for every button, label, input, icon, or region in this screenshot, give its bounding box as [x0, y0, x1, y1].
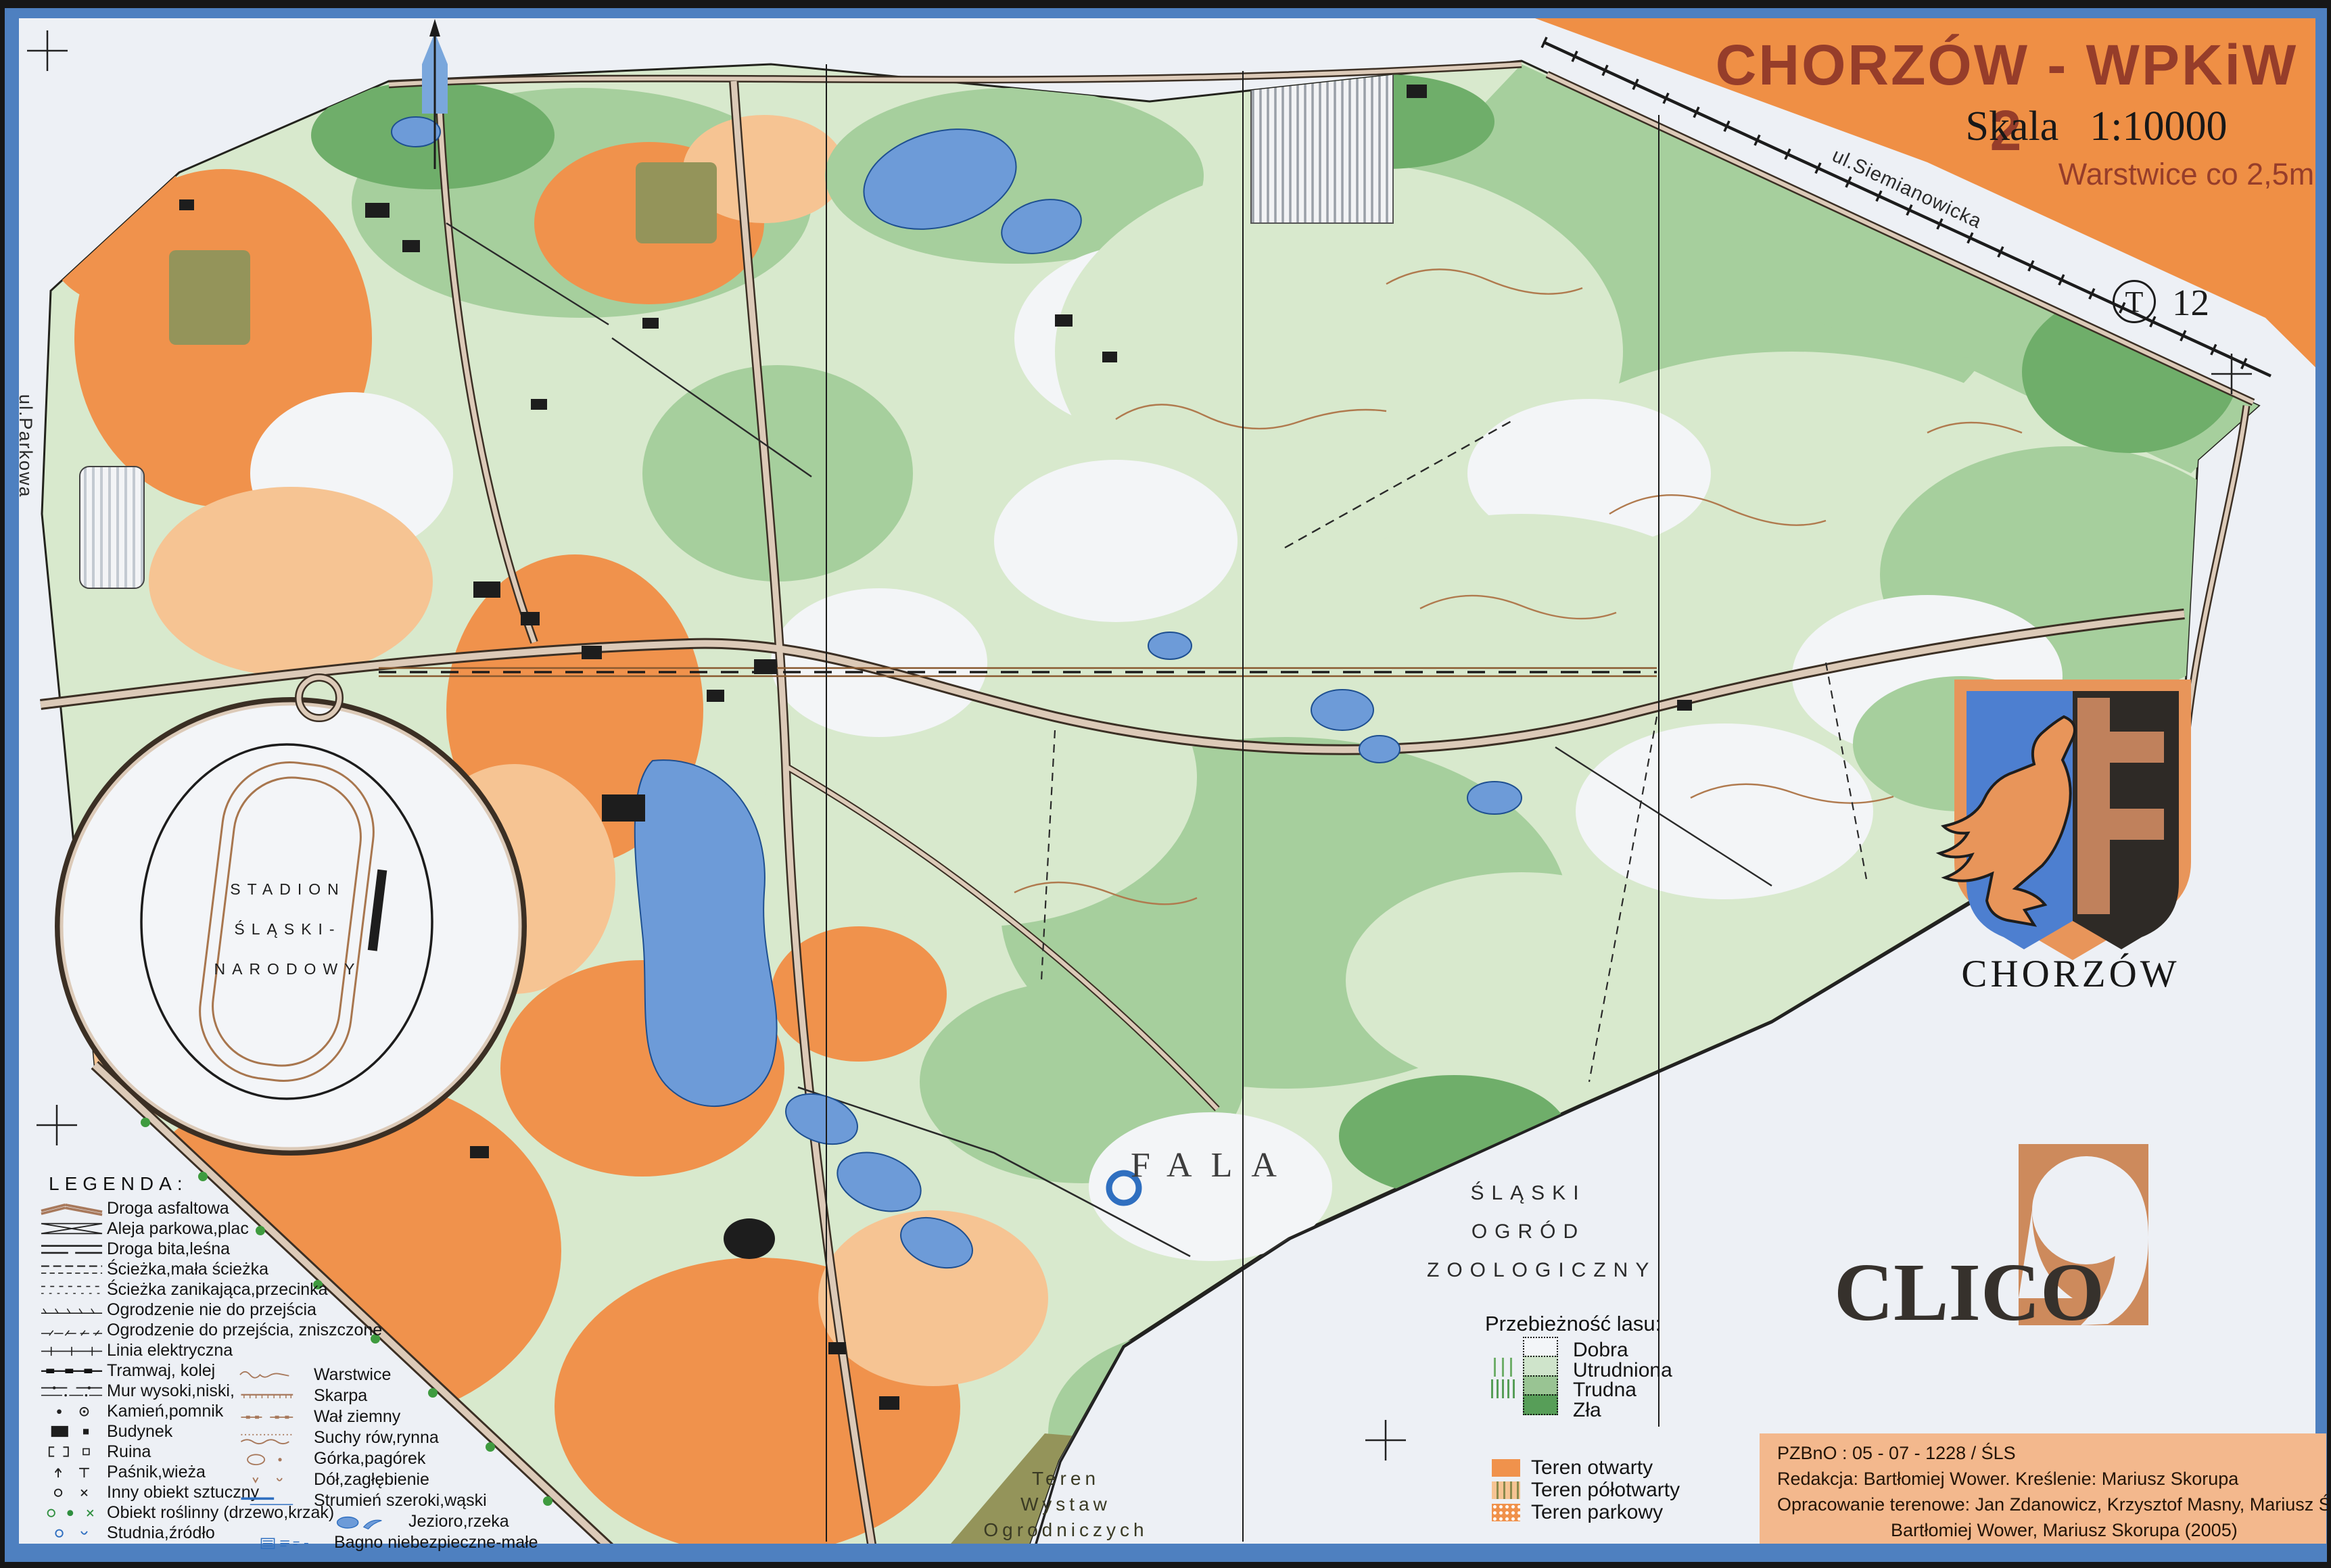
- credits-survey-1: Opracowanie terenowe: Jan Zdanowicz, Krz…: [1777, 1494, 2326, 1515]
- legend-item-label: Skarpa: [314, 1386, 367, 1406]
- run-slow-swatch: [1523, 1356, 1558, 1377]
- sw-semiopen-swatch: [1492, 1481, 1520, 1499]
- legend-item-label: Budynek: [107, 1422, 172, 1442]
- legend-item: Bagno niebezpieczne-małe: [258, 1532, 538, 1553]
- legend-item-label: Górka,pagórek: [314, 1449, 425, 1469]
- scale-value: 1:10000: [2090, 103, 2227, 151]
- budynek-icon: [39, 1422, 107, 1441]
- legend-item-label: Inny obiekt sztuczny: [107, 1483, 259, 1502]
- credits-registry: PZBnO : 05 - 07 - 1228 / ŚLS: [1777, 1443, 2326, 1464]
- strumien-icon: [238, 1492, 314, 1511]
- legend-item-label: Warstwice: [314, 1365, 391, 1385]
- zoo-label-line3: ZOOLOGICZNY: [1427, 1251, 1630, 1289]
- linia-elektryczna-icon: [39, 1341, 107, 1360]
- aleja-parkowa-icon: [39, 1219, 107, 1238]
- credits-survey-2: Bartłomiej Wower, Mariusz Skorupa (2005): [1891, 1520, 2326, 1541]
- skarpa-icon: [238, 1387, 314, 1406]
- runnability-label: Dobra: [1573, 1339, 1672, 1359]
- run-hard-swatch: [1523, 1375, 1558, 1396]
- clico-logo-text: CLICO: [1834, 1245, 2104, 1340]
- ogrodzenie-nie-icon: [39, 1300, 107, 1319]
- crest-city-label: CHORZÓW: [1942, 952, 2199, 996]
- legend-item-label: Kamień,pomnik: [107, 1402, 223, 1421]
- exhibition-label-line3: Ogrodniczych: [971, 1517, 1160, 1543]
- stadium-label: STADION ŚLĄSKI- NARODOWY: [195, 870, 381, 989]
- legend-item: Dół,zagłębienie: [238, 1469, 538, 1490]
- droga-bita-icon: [39, 1239, 107, 1258]
- gorka-pagorek-icon: [238, 1450, 314, 1469]
- legend-item: Jezioro,rzeka: [333, 1511, 538, 1532]
- terrain-type-label: Teren otwarty: [1531, 1456, 1653, 1479]
- legend-item: Aleja parkowa,plac: [39, 1218, 382, 1239]
- legend-item: Strumień szeroki,wąski: [238, 1490, 538, 1511]
- exhibition-label-line1: Teren: [971, 1466, 1160, 1492]
- stadium-label-line3: NARODOWY: [195, 949, 381, 989]
- suchy-row-icon: [238, 1429, 314, 1448]
- legend-item-label: Ruina: [107, 1442, 151, 1462]
- runnability-label: Utrudniona: [1573, 1359, 1672, 1379]
- legend-item: Skarpa: [238, 1385, 538, 1406]
- legend-item-label: Mur wysoki,niski,: [107, 1381, 235, 1401]
- map-sheet: CHORZÓW - WPKiW 2 Skala 1:10000 Warstwic…: [0, 0, 2331, 1568]
- sw-open-swatch: [1492, 1459, 1520, 1477]
- legend-item: Droga asfaltowa: [39, 1198, 382, 1218]
- ogrodzenie-do-icon: [39, 1321, 107, 1339]
- legend-item: Linia elektryczna: [39, 1340, 382, 1360]
- legend-item-label: Droga bita,leśna: [107, 1239, 230, 1259]
- zoo-label-line1: ŚLĄSKI: [1427, 1174, 1630, 1212]
- legend-item: Droga bita,leśna: [39, 1239, 382, 1259]
- planetarium-dome: [724, 1218, 775, 1259]
- legend-item-label: Bagno niebezpieczne-małe: [334, 1533, 538, 1552]
- legend-item-label: Ogrodzenie do przejścia, zniszczone: [107, 1321, 382, 1340]
- sw-park-swatch: [1492, 1504, 1520, 1521]
- scan-edge-right: [2327, 0, 2331, 1568]
- legend-item: Ogrodzenie do przejścia, zniszczone: [39, 1320, 382, 1340]
- scale-word: Skala: [1966, 103, 2059, 151]
- legend-item-label: Ogrodzenie nie do przejścia: [107, 1300, 316, 1320]
- scan-edge-left: [0, 0, 5, 1568]
- legend-item-label: Ścieżka zanikająca,przecinka: [107, 1280, 328, 1300]
- map-code-letter: T: [2125, 285, 2144, 319]
- legend-item-label: Aleja parkowa,plac: [107, 1219, 249, 1239]
- pasnik-wieza-icon: [39, 1463, 107, 1481]
- contour-interval-note: Warstwice co 2,5m: [2049, 157, 2324, 192]
- scan-edge-top: [0, 0, 2331, 8]
- tramwaj-kolej-icon: [39, 1361, 107, 1380]
- mur-icon: [39, 1381, 107, 1400]
- terrain-type-label: Teren parkowy: [1531, 1501, 1663, 1524]
- wal-ziemny-icon: [238, 1408, 314, 1427]
- legend-item-label: Droga asfaltowa: [107, 1199, 229, 1218]
- sciezka-zanikajaca-icon: [39, 1280, 107, 1299]
- legend-item: Wał ziemny: [238, 1406, 538, 1427]
- map-frame-left: [5, 8, 19, 1562]
- kamien-pomnik-icon: [39, 1402, 107, 1421]
- legend-item: Ogrodzenie nie do przejścia: [39, 1300, 382, 1320]
- legend-item-label: Suchy rów,rynna: [314, 1428, 439, 1448]
- obiekt-roslinny-icon: [39, 1503, 107, 1522]
- legend-item-label: Dół,zagłębienie: [314, 1470, 429, 1490]
- legend-heading: LEGENDA:: [49, 1173, 188, 1195]
- legend-item: Górka,pagórek: [238, 1448, 538, 1469]
- bagno-icon: [258, 1534, 334, 1552]
- credits-editors: Redakcja: Bartłomiej Wower. Kreślenie: M…: [1777, 1469, 2326, 1490]
- scale-line: Skala 1:10000: [1927, 103, 2265, 151]
- dol-zaglebienie-icon: [238, 1471, 314, 1490]
- run-good-swatch: [1523, 1337, 1558, 1358]
- scan-edge-bottom: [0, 1562, 2331, 1568]
- legend-item-label: Tramwaj, kolej: [107, 1361, 215, 1381]
- map-frame-top: [5, 8, 2327, 18]
- legend-item-label: Ścieżka,mała ścieżka: [107, 1260, 268, 1279]
- terrain-type-item: Teren otwarty: [1492, 1459, 1680, 1477]
- legend-item: Ścieżka zanikająca,przecinka: [39, 1279, 382, 1300]
- credits-panel: PZBnO : 05 - 07 - 1228 / ŚLS Redakcja: B…: [1760, 1433, 2326, 1544]
- sciezka-icon: [39, 1260, 107, 1279]
- chorzow-crest: [1939, 680, 2191, 960]
- map-frame-right: [2315, 8, 2327, 1562]
- runnability-labels: DobraUtrudnionaTrudnaZła: [1573, 1339, 1672, 1419]
- legend-item: Suchy rów,rynna: [238, 1427, 538, 1448]
- exhibition-label-line2: Wystaw: [971, 1492, 1160, 1517]
- terrain-type-rows: Teren otwartyTeren półotwartyTeren parko…: [1492, 1459, 1680, 1521]
- terrain-type-item: Teren parkowy: [1492, 1504, 1680, 1521]
- legend-item: Warstwice: [238, 1364, 538, 1385]
- street-label-parkowa: ul.Parkowa: [15, 394, 36, 498]
- inny-obiekt-icon: [39, 1483, 107, 1502]
- map-code-number: 12: [2172, 281, 2209, 324]
- zoo-label: ŚLĄSKI OGRÓD ZOOLOGICZNY: [1427, 1174, 1630, 1289]
- runnability-heading: Przebieżność lasu:: [1485, 1312, 1661, 1336]
- droga-asfaltowa-icon: [39, 1199, 107, 1218]
- stadium-label-line1: STADION: [195, 870, 381, 909]
- legend-item: Ścieżka,mała ścieżka: [39, 1259, 382, 1279]
- legend-item-label: Paśnik,wieża: [107, 1463, 206, 1482]
- ruina-icon: [39, 1442, 107, 1461]
- legend-item-label: Linia elektryczna: [107, 1341, 233, 1360]
- zoo-label-line2: OGRÓD: [1427, 1212, 1630, 1251]
- legend-item-label: Strumień szeroki,wąski: [314, 1491, 487, 1511]
- legend-column-2: WarstwiceSkarpaWał ziemnySuchy rów,rynna…: [238, 1364, 538, 1553]
- warstwice-icon: [238, 1366, 314, 1385]
- studnia-zrodlo-icon: [39, 1523, 107, 1542]
- terrain-type-item: Teren półotwarty: [1492, 1481, 1680, 1499]
- run-bad-swatch: [1523, 1394, 1558, 1415]
- terrain-type-label: Teren półotwarty: [1531, 1479, 1680, 1502]
- stadium-label-line2: ŚLĄSKI-: [195, 909, 381, 949]
- fala-label: FALA: [1131, 1145, 1296, 1185]
- jezioro-rzeka-icon: [333, 1513, 408, 1531]
- runnability-swatches: [1523, 1338, 1558, 1415]
- runnability-label: Zła: [1573, 1399, 1672, 1419]
- legend-item-label: Wał ziemny: [314, 1407, 400, 1427]
- map-code-symbol: T: [2113, 280, 2156, 323]
- undergrowth-slow-icon: [1488, 1358, 1517, 1377]
- exhibition-grounds-label: Teren Wystaw Ogrodniczych: [971, 1466, 1160, 1543]
- undergrowth-hard-icon: [1488, 1379, 1517, 1398]
- legend-item-label: Studnia,źródło: [107, 1523, 215, 1543]
- runnability-label: Trudna: [1573, 1379, 1672, 1399]
- legend-item-label: Jezioro,rzeka: [408, 1512, 509, 1531]
